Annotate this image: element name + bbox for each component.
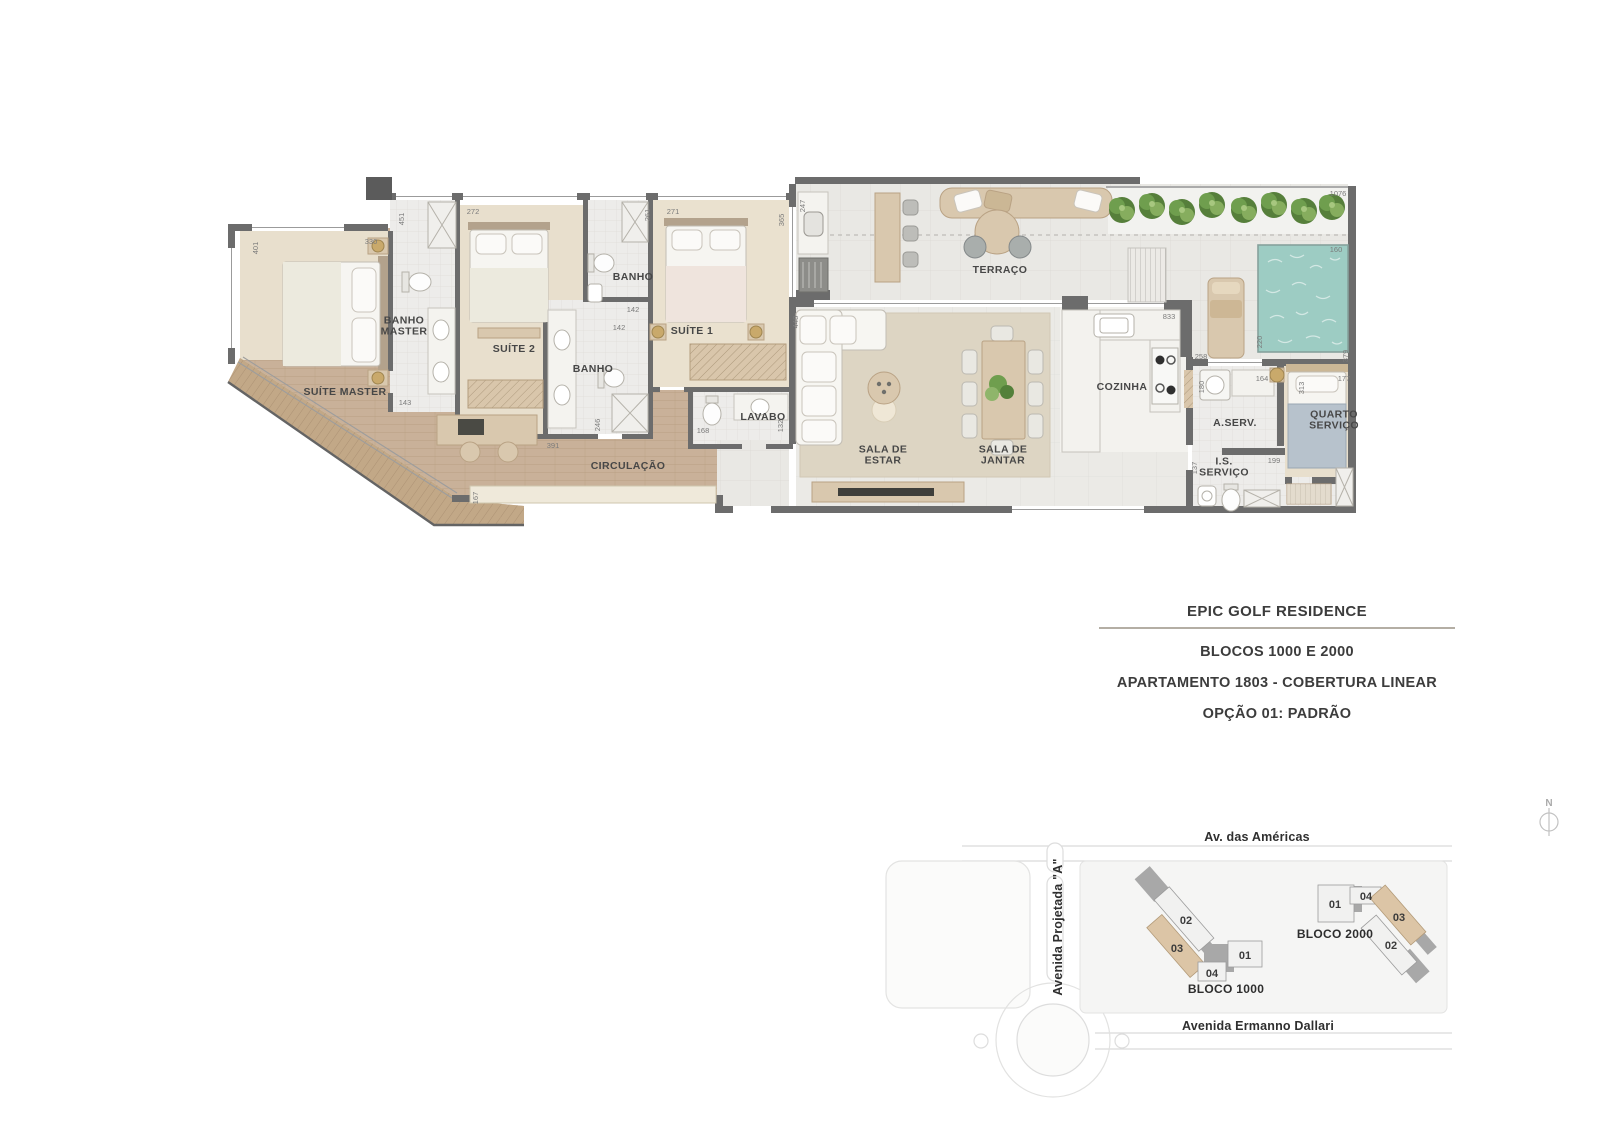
- pool-lounge-chair: [1208, 278, 1244, 358]
- toilet-icon: [594, 254, 614, 272]
- dimension-label: 401: [251, 242, 260, 255]
- tv-icon: [458, 419, 484, 435]
- street-avenida-ermanno-dallari: Avenida Ermanno Dallari: [1182, 1019, 1334, 1033]
- room-label-cozinha: COZINHA: [1097, 381, 1148, 393]
- dimension-label: 137: [1190, 462, 1199, 475]
- room-label-suite-1: SUÍTE 1: [671, 324, 713, 337]
- bench: [470, 486, 716, 503]
- tree-icon: [1291, 198, 1317, 224]
- room-label-sala-de-jantar: SALA DEJANTAR: [979, 444, 1028, 467]
- dimension-label: 313: [1297, 382, 1306, 395]
- title-divider: [1099, 627, 1455, 629]
- tree-icon: [1139, 193, 1165, 219]
- chair-icon: [962, 382, 977, 406]
- wardrobe-icon: [468, 380, 543, 408]
- dimension-label: 448: [791, 316, 800, 329]
- tree-icon: [1199, 192, 1225, 218]
- title-block: EPIC GOLF RESIDENCE BLOCOS 1000 E 2000 A…: [1099, 603, 1455, 722]
- tree-icon: [1231, 197, 1257, 223]
- room-label-banho-1: BANHO: [613, 271, 654, 283]
- unit-2000-03: 03: [1393, 912, 1405, 924]
- unit-2000-01: 01: [1329, 899, 1341, 911]
- lamp-icon: [652, 326, 664, 338]
- floor-plan: SUÍTE MASTERBANHOMASTERSUÍTE 2BANHOBANHO…: [228, 177, 1359, 525]
- dimension-label: 379: [1341, 350, 1350, 363]
- roundabout: [1017, 1004, 1089, 1076]
- apartment-subtitle: APARTAMENTO 1803 - COBERTURA LINEAR: [1099, 675, 1455, 691]
- dimension-label: 272: [467, 207, 480, 216]
- stool-icon: [903, 252, 918, 267]
- dimension-label: 330: [365, 237, 378, 246]
- blocks-subtitle: BLOCOS 1000 E 2000: [1099, 644, 1455, 660]
- chair-icon: [1028, 350, 1043, 374]
- room-label-a-serv: A.SERV.: [1213, 417, 1257, 429]
- room-label-suite-master: SUÍTE MASTER: [304, 385, 387, 398]
- toilet-icon: [1222, 489, 1240, 511]
- sink-icon: [554, 385, 570, 405]
- north-label: N: [1545, 798, 1552, 809]
- dimension-label: 1076: [1330, 189, 1347, 198]
- louver-screen: [1128, 248, 1166, 302]
- stove-icon: [1152, 348, 1178, 404]
- floorplan-sheet: SUÍTE MASTERBANHOMASTERSUÍTE 2BANHOBANHO…: [0, 0, 1600, 1131]
- dimension-label: 451: [397, 213, 406, 226]
- chair-icon: [1009, 236, 1031, 258]
- dimension-label: 160: [1330, 245, 1343, 254]
- dimension-label: 247: [798, 200, 807, 213]
- room-label-banho-master: BANHOMASTER: [381, 315, 428, 338]
- wardrobe-icon: [690, 344, 786, 380]
- sink-icon: [554, 330, 570, 350]
- sink-icon: [1198, 486, 1216, 506]
- dimension-label: 167: [471, 492, 480, 505]
- room-label-circulacao: CIRCULAÇÃO: [591, 459, 666, 472]
- street-av-das-americas: Av. das Américas: [1204, 830, 1310, 844]
- door-hatch: [1184, 370, 1193, 408]
- site-map: Av. das AméricasAvenida Projetada "A"Ave…: [886, 830, 1452, 1097]
- unit-1000-03: 03: [1171, 943, 1183, 955]
- pool: [1258, 245, 1348, 352]
- room-label-banho-2: BANHO: [573, 363, 614, 375]
- dimension-label: 391: [547, 441, 560, 450]
- chair-icon: [962, 350, 977, 374]
- desk: [437, 415, 537, 445]
- suite-2-bed: [468, 222, 550, 408]
- sink-icon: [588, 284, 602, 302]
- unit-1000-02: 02: [1180, 915, 1192, 927]
- dimension-label: 164: [1256, 374, 1269, 383]
- stool-icon: [903, 226, 918, 241]
- dimension-label: 246: [593, 419, 602, 432]
- dimension-label: 177: [1338, 374, 1351, 383]
- chair-icon: [962, 414, 977, 438]
- sink-icon: [804, 212, 823, 236]
- dimension-label: 142: [613, 323, 626, 332]
- street-avenida-projetada-a: Avenida Projetada "A": [1051, 858, 1065, 995]
- toilet-icon: [409, 273, 431, 291]
- chair-icon: [991, 326, 1013, 341]
- city-block-west: [886, 861, 1030, 1008]
- chair-icon: [1028, 414, 1043, 438]
- dimension-label: 261: [643, 209, 652, 222]
- sink-icon: [433, 362, 449, 382]
- project-title: EPIC GOLF RESIDENCE: [1099, 603, 1455, 620]
- toilet-icon: [703, 403, 721, 425]
- unit-2000-02: 02: [1385, 940, 1397, 952]
- room-label-quarto-servico: QUARTOSERVIÇO: [1309, 409, 1359, 432]
- tv-icon: [838, 488, 934, 496]
- dimension-label: 258: [1195, 352, 1208, 361]
- dimension-label: 168: [697, 426, 710, 435]
- north-arrow: N: [1540, 798, 1558, 836]
- entry-floor: [717, 440, 789, 506]
- tree-icon: [1261, 192, 1287, 218]
- room-label-sala-de-estar: SALA DEESTAR: [859, 444, 908, 467]
- lamp-icon: [372, 372, 384, 384]
- room-label-suite-2: SUÍTE 2: [493, 342, 535, 355]
- dimension-label: 143: [399, 398, 412, 407]
- tree-icon: [1169, 199, 1195, 225]
- chair-icon: [460, 442, 480, 462]
- dimension-label: 220: [1255, 336, 1264, 349]
- bar-table: [875, 193, 900, 282]
- room-label-terraco: TERRAÇO: [973, 264, 1028, 276]
- dimension-label: 142: [627, 305, 640, 314]
- label-bloco-1000: BLOCO 1000: [1188, 982, 1264, 996]
- unit-2000-04: 04: [1360, 891, 1373, 903]
- coffee-table: [868, 372, 900, 404]
- unit-1000-01: 01: [1239, 950, 1251, 962]
- dimension-label: 365: [777, 214, 786, 227]
- chair-icon: [1028, 382, 1043, 406]
- dimension-label: 199: [1268, 456, 1281, 465]
- plan-svg: SUÍTE MASTERBANHOMASTERSUÍTE 2BANHOBANHO…: [0, 0, 1600, 1131]
- dimension-label: 271: [667, 207, 680, 216]
- sink-icon: [433, 320, 449, 340]
- option-subtitle: OPÇÃO 01: PADRÃO: [1099, 706, 1455, 722]
- chair-icon: [498, 442, 518, 462]
- dimension-label: 180: [1197, 381, 1206, 394]
- lamp-icon: [1270, 368, 1284, 382]
- unit-1000-04: 04: [1206, 968, 1219, 980]
- lamp-icon: [750, 326, 762, 338]
- tree-icon: [1109, 197, 1135, 223]
- dimension-label: 132: [776, 420, 785, 433]
- chair-icon: [964, 236, 986, 258]
- label-bloco-2000: BLOCO 2000: [1297, 927, 1373, 941]
- dimension-label: 833: [1163, 312, 1176, 321]
- stool-icon: [903, 200, 918, 215]
